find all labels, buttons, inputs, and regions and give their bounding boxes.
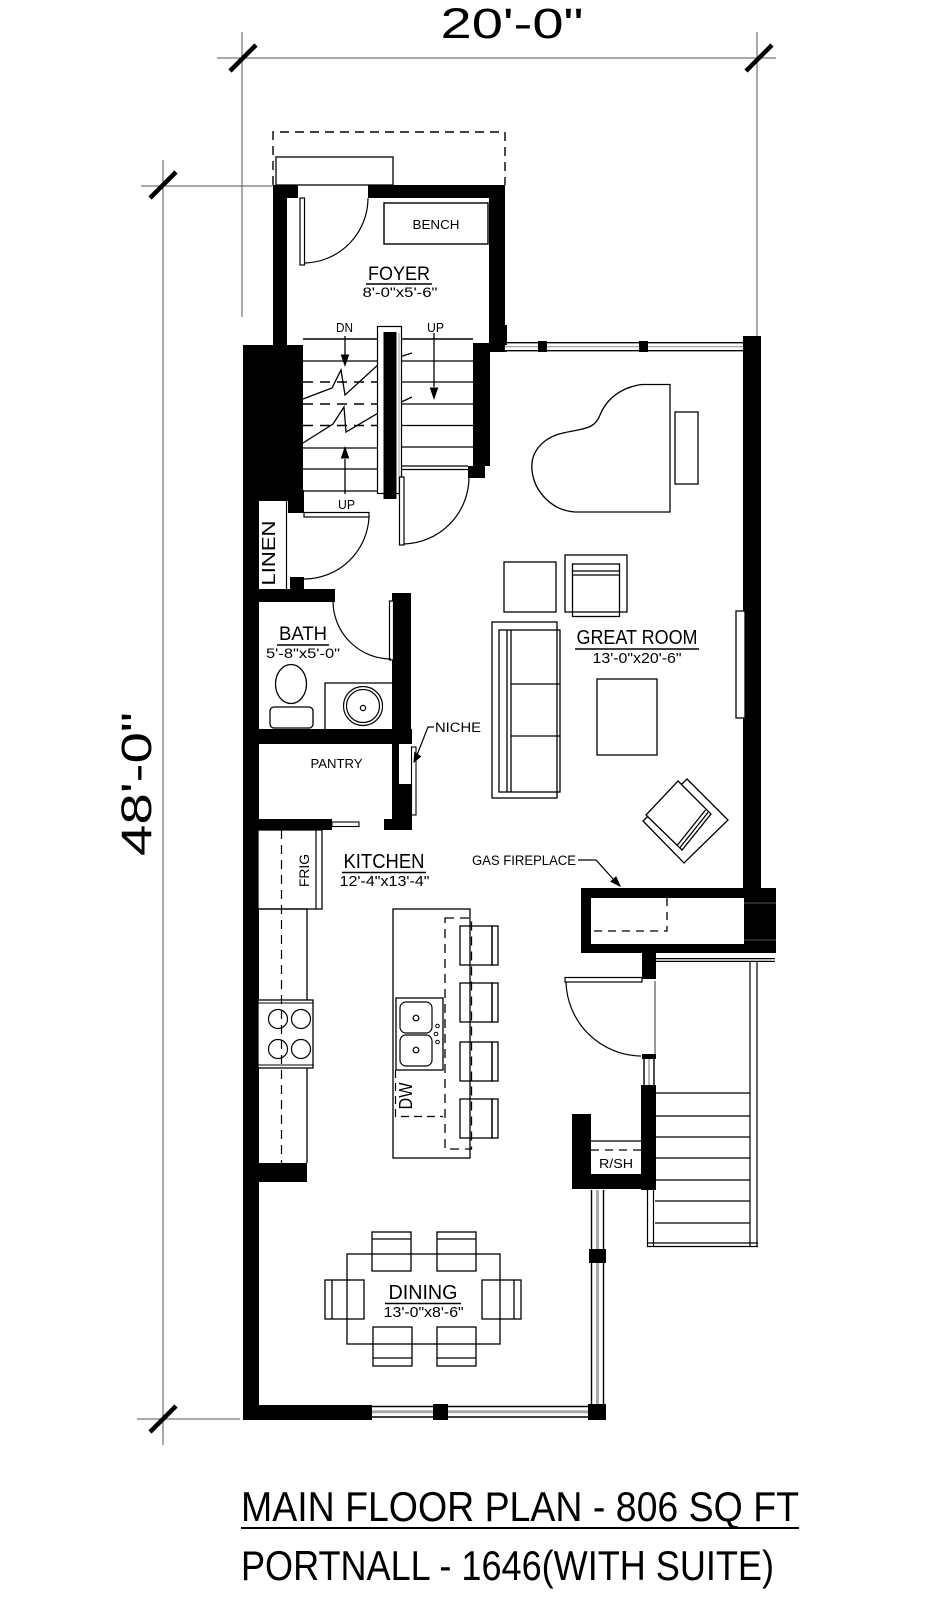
- svg-text:DN: DN: [336, 320, 353, 335]
- svg-text:KITCHEN: KITCHEN: [344, 851, 425, 873]
- svg-text:20'-0": 20'-0": [441, 0, 584, 48]
- svg-text:13'-0"x20'-6": 13'-0"x20'-6": [593, 650, 682, 667]
- svg-text:UP: UP: [427, 320, 444, 335]
- svg-text:5'-8"x5'-0": 5'-8"x5'-0": [266, 645, 340, 661]
- svg-text:FOYER: FOYER: [368, 264, 430, 285]
- svg-text:PORTNALL - 1646(WITH SUITE): PORTNALL - 1646(WITH SUITE): [241, 1542, 774, 1589]
- svg-text:PANTRY: PANTRY: [311, 756, 363, 771]
- svg-text:DW: DW: [396, 1083, 416, 1110]
- svg-text:UP: UP: [338, 497, 355, 512]
- svg-text:FRIG: FRIG: [296, 854, 312, 887]
- svg-text:BATH: BATH: [279, 624, 327, 645]
- svg-text:13'-0"x8'-6": 13'-0"x8'-6": [384, 1304, 464, 1321]
- svg-text:GREAT ROOM: GREAT ROOM: [577, 627, 698, 649]
- svg-text:NICHE: NICHE: [435, 720, 481, 735]
- svg-text:12'-4"x13'-4": 12'-4"x13'-4": [340, 873, 430, 890]
- svg-text:DINING: DINING: [389, 1282, 458, 1304]
- svg-text:MAIN FLOOR PLAN - 806 SQ FT: MAIN FLOOR PLAN - 806 SQ FT: [241, 1483, 799, 1530]
- svg-text:R/SH: R/SH: [599, 1156, 633, 1171]
- svg-text:8'-0"x5'-6": 8'-0"x5'-6": [363, 284, 438, 300]
- svg-text:GAS FIREPLACE: GAS FIREPLACE: [472, 853, 576, 868]
- svg-text:LINEN: LINEN: [259, 521, 279, 586]
- svg-text:48'-0": 48'-0": [113, 712, 161, 856]
- svg-text:BENCH: BENCH: [413, 217, 460, 232]
